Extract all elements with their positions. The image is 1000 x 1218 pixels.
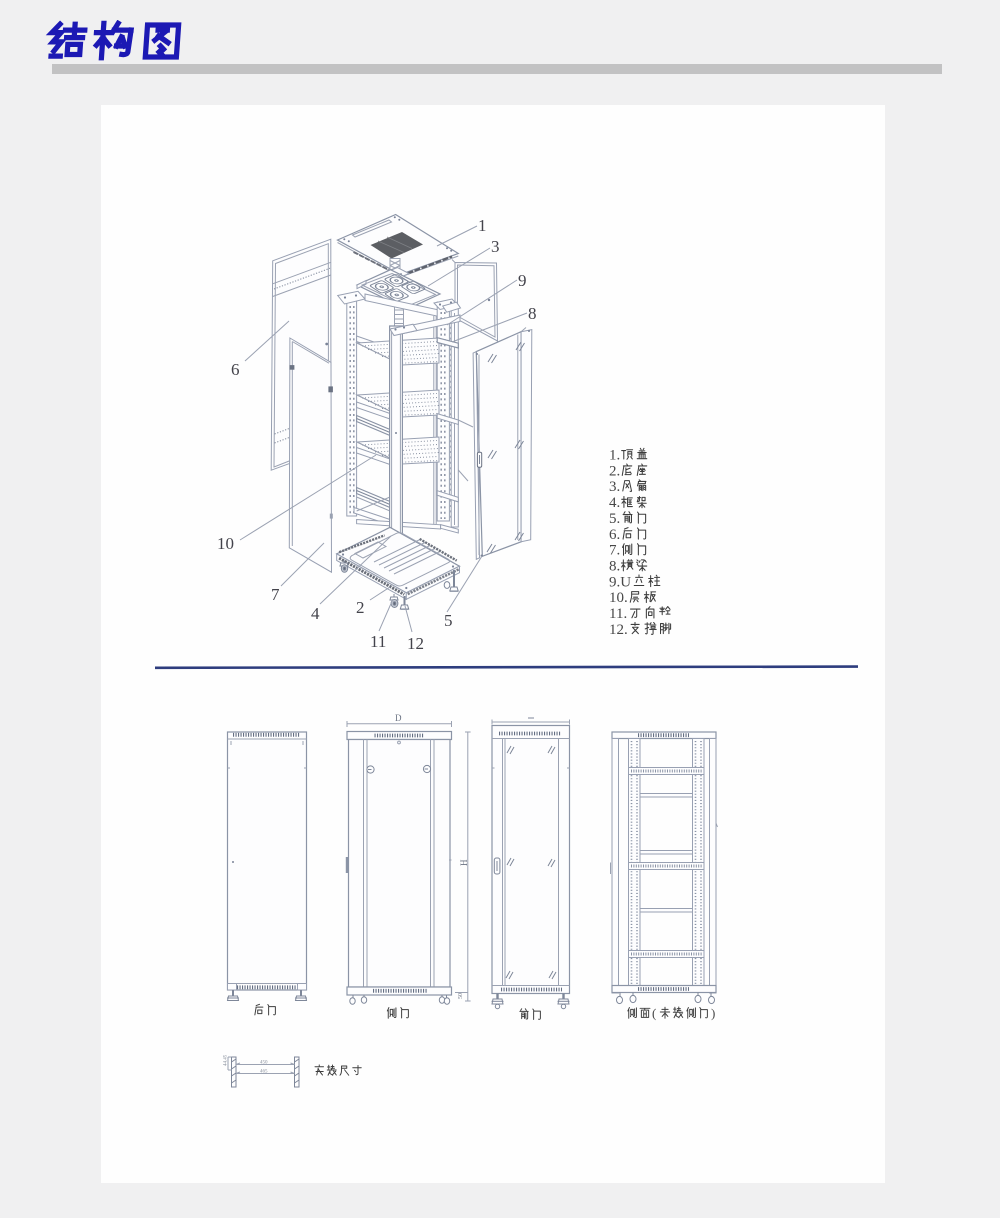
svg-text:11.: 11.	[609, 606, 627, 622]
svg-text:4: 4	[311, 604, 320, 623]
svg-text:44.45: 44.45	[224, 1054, 229, 1066]
svg-text:5: 5	[444, 611, 453, 630]
svg-text:7.: 7.	[609, 543, 620, 559]
svg-text:1.: 1.	[609, 448, 620, 464]
svg-text:): )	[711, 1006, 715, 1021]
svg-text:465: 465	[260, 1070, 268, 1075]
svg-text:12: 12	[407, 634, 424, 653]
svg-text:3.: 3.	[609, 479, 620, 495]
svg-text:H: H	[459, 859, 469, 866]
svg-text:2.: 2.	[609, 463, 620, 479]
svg-text:7: 7	[271, 585, 280, 604]
svg-text:11: 11	[370, 632, 386, 651]
svg-text:6.: 6.	[609, 527, 620, 543]
svg-text:50: 50	[458, 993, 464, 999]
svg-text:4.: 4.	[609, 495, 620, 511]
svg-text:8.: 8.	[609, 559, 620, 575]
svg-text:9: 9	[518, 271, 527, 290]
svg-text:5.: 5.	[609, 511, 620, 527]
svg-text:12.: 12.	[609, 622, 628, 638]
svg-text:2: 2	[356, 598, 365, 617]
svg-text:9.U: 9.U	[609, 574, 631, 590]
svg-text:1: 1	[478, 216, 487, 235]
svg-text:3: 3	[491, 237, 500, 256]
svg-text:D: D	[395, 713, 402, 723]
svg-text:450: 450	[260, 1061, 268, 1066]
svg-text:8: 8	[528, 304, 537, 323]
svg-text:10.: 10.	[609, 590, 628, 606]
svg-text:6: 6	[231, 360, 240, 379]
svg-text:10: 10	[217, 534, 234, 553]
svg-text:(: (	[652, 1006, 656, 1021]
